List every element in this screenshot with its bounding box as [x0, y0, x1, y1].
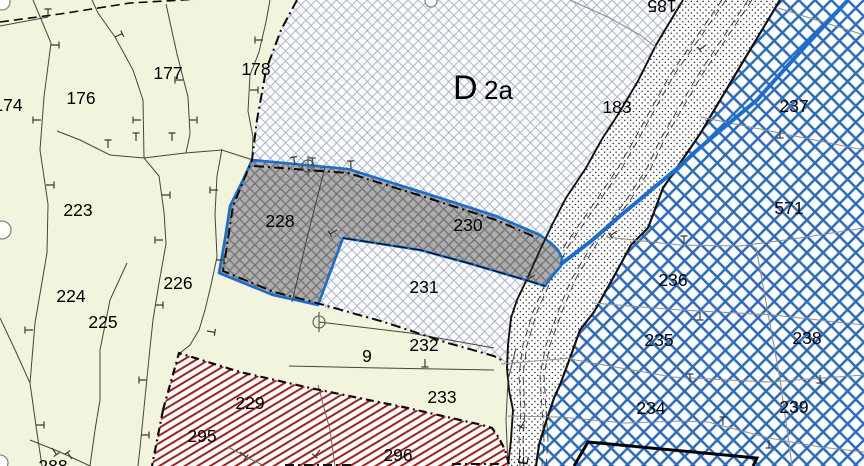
- svg-text:2a: 2a: [484, 75, 513, 105]
- svg-text:9: 9: [362, 346, 372, 366]
- svg-text:226: 226: [163, 273, 192, 293]
- svg-text:296: 296: [383, 445, 412, 465]
- svg-text:295: 295: [187, 426, 216, 446]
- svg-text:176: 176: [66, 88, 95, 108]
- svg-text:233: 233: [427, 387, 456, 407]
- svg-text:288: 288: [38, 456, 67, 466]
- svg-text:174: 174: [0, 95, 23, 115]
- svg-text:232: 232: [409, 335, 438, 355]
- svg-text:237: 237: [779, 96, 808, 116]
- svg-text:239: 239: [779, 397, 808, 417]
- svg-text:230: 230: [453, 215, 482, 235]
- svg-text:234: 234: [636, 398, 665, 418]
- svg-text:183: 183: [602, 97, 631, 117]
- svg-text:223: 223: [63, 200, 92, 220]
- svg-text:185: 185: [647, 0, 676, 16]
- svg-text:238: 238: [792, 328, 821, 348]
- svg-text:571: 571: [774, 198, 803, 218]
- svg-text:229: 229: [235, 393, 264, 413]
- svg-text:225: 225: [88, 312, 117, 332]
- svg-text:178: 178: [241, 59, 270, 79]
- svg-text:D: D: [453, 69, 478, 107]
- svg-text:228: 228: [265, 211, 294, 231]
- svg-text:224: 224: [56, 286, 85, 306]
- svg-text:235: 235: [644, 330, 673, 350]
- svg-text:177: 177: [153, 63, 182, 83]
- svg-text:231: 231: [409, 277, 438, 297]
- svg-text:236: 236: [658, 270, 687, 290]
